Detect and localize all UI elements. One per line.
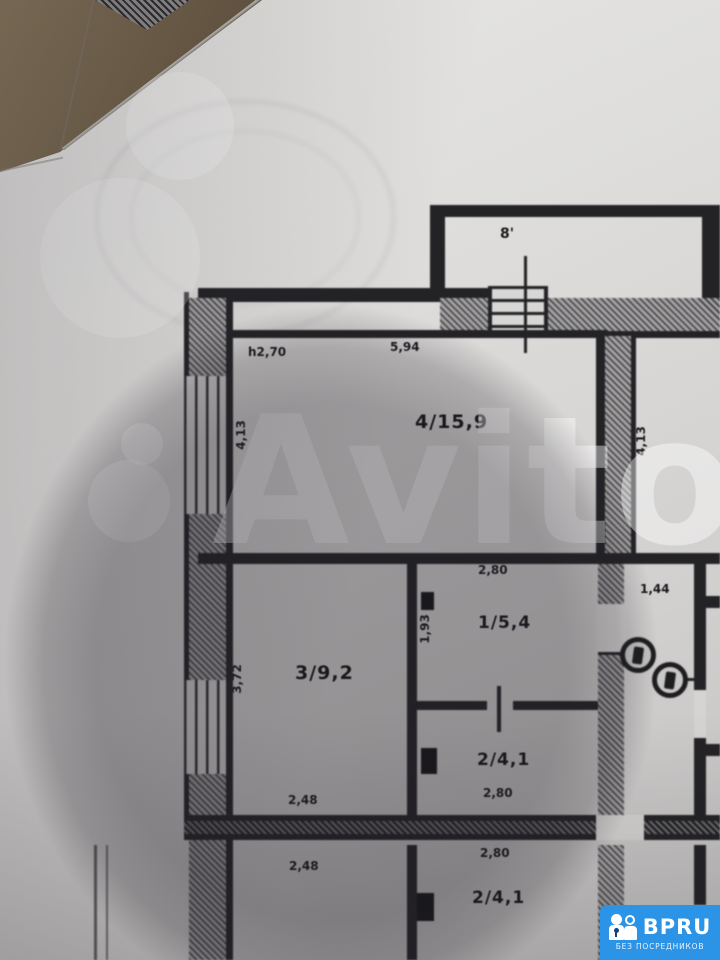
lower-room2-label: 2/4,1 xyxy=(472,888,525,908)
floorplan-labels: 8' h2,70 5,94 4/15,9 4,13 4,13 2,80 1,93… xyxy=(0,0,720,960)
dimension-right-room-depth: 4,13 xyxy=(634,426,648,456)
room2-label: 2/4,1 xyxy=(477,750,530,770)
dimension-corridor-width: 1,44 xyxy=(640,582,670,596)
dimension-room1-width: 2,80 xyxy=(478,563,508,577)
bpru-logo-badge: BPRU БЕЗ ПОСРЕДНИКОВ xyxy=(600,905,720,960)
dimension-lower-left-width: 2,48 xyxy=(289,859,319,873)
floorplan-photo[interactable]: 8' h2,70 5,94 4/15,9 4,13 4,13 2,80 1,93… xyxy=(0,0,720,960)
people-key-icon xyxy=(609,914,639,940)
dimension-lower-room2-width: 2,80 xyxy=(480,846,510,860)
bpru-brand-text: BPRU xyxy=(643,917,712,938)
dimension-room3-width: 2,48 xyxy=(288,793,318,807)
dimension-room1-depth: 1,93 xyxy=(418,614,432,644)
bpru-tagline: БЕЗ ПОСРЕДНИКОВ xyxy=(616,942,705,951)
balcony-label: 8' xyxy=(500,226,514,242)
dimension-room4-depth: 4,13 xyxy=(234,420,248,450)
dimension-room3-depth: 3,72 xyxy=(230,664,244,694)
room1-label: 1/5,4 xyxy=(478,613,531,633)
room4-label: 4/15,9 xyxy=(415,411,488,433)
dimension-room4-width: 5,94 xyxy=(390,340,420,354)
ceiling-height-note: h2,70 xyxy=(248,345,286,359)
dimension-room2-width: 2,80 xyxy=(483,786,513,800)
room3-label: 3/9,2 xyxy=(295,662,354,684)
